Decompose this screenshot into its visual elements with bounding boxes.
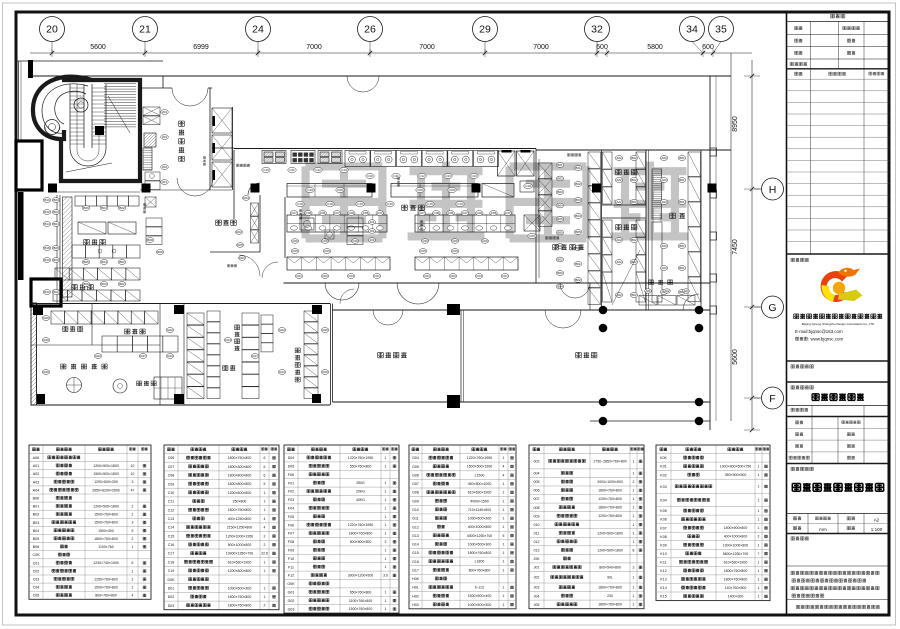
svg-text:B02: B02 xyxy=(33,513,39,517)
svg-text:B06: B06 xyxy=(33,545,39,549)
svg-text:2000×1000×500: 2000×1000×500 xyxy=(597,480,623,484)
svg-text:D04: D04 xyxy=(243,196,249,200)
svg-text:C02: C02 xyxy=(450,274,456,278)
svg-text:C02: C02 xyxy=(33,569,40,573)
svg-text:C06: C06 xyxy=(452,249,458,253)
svg-text:C01: C01 xyxy=(374,274,380,278)
svg-text:1: 1 xyxy=(633,540,635,544)
svg-text:C06: C06 xyxy=(306,211,312,215)
svg-text:1: 1 xyxy=(264,569,266,573)
svg-text:90L: 90L xyxy=(607,576,613,580)
svg-text:1: 1 xyxy=(385,557,387,561)
svg-text:G04: G04 xyxy=(412,456,419,460)
svg-text:1: 1 xyxy=(385,506,387,510)
svg-text:D02: D02 xyxy=(168,595,175,599)
svg-text:1: 1 xyxy=(633,497,635,501)
svg-text:5800: 5800 xyxy=(647,44,663,51)
svg-text:1: 1 xyxy=(264,491,266,495)
svg-text:1200×760×800: 1200×760×800 xyxy=(598,497,622,501)
svg-text:C14: C14 xyxy=(168,526,175,530)
svg-text:B01: B01 xyxy=(679,244,685,248)
svg-text:B02: B02 xyxy=(557,177,563,181)
svg-text:B02: B02 xyxy=(119,282,125,286)
svg-text:6: 6 xyxy=(264,465,266,469)
svg-text:F07: F07 xyxy=(288,532,294,536)
svg-text:K07: K07 xyxy=(660,526,666,530)
svg-text:B12: B12 xyxy=(44,290,50,294)
svg-text:4: 4 xyxy=(264,517,266,521)
svg-text:C18: C18 xyxy=(168,560,175,564)
svg-text:C03: C03 xyxy=(33,578,40,582)
svg-text:1800×760×800: 1800×760×800 xyxy=(228,604,252,608)
svg-text:C13: C13 xyxy=(341,168,347,172)
svg-text:5600: 5600 xyxy=(732,349,739,365)
svg-text:1: 1 xyxy=(385,565,387,569)
svg-text:610×630×1900: 610×630×1900 xyxy=(724,560,748,564)
svg-text:5600×1250×700: 5600×1250×700 xyxy=(723,552,749,556)
svg-text:1220×760×1950: 1220×760×1950 xyxy=(348,456,374,460)
svg-text:1800×760×800: 1800×760×800 xyxy=(228,595,252,599)
svg-text:1: 1 xyxy=(633,523,635,527)
svg-text:A02: A02 xyxy=(616,156,622,160)
svg-text:2: 2 xyxy=(132,577,134,581)
svg-text:6: 6 xyxy=(264,456,266,460)
svg-text:H0K: H0K xyxy=(412,577,420,581)
svg-text:450×500×1000: 450×500×1000 xyxy=(468,482,492,486)
svg-text:400×1000×800: 400×1000×800 xyxy=(724,535,748,539)
svg-text:10: 10 xyxy=(131,472,135,476)
svg-text:G09: G09 xyxy=(412,499,419,503)
svg-text:C17: C17 xyxy=(168,552,175,556)
svg-text:G07: G07 xyxy=(412,482,419,486)
svg-text:B01: B01 xyxy=(679,200,685,204)
svg-text:10: 10 xyxy=(131,464,135,468)
svg-text:4: 4 xyxy=(503,473,505,477)
svg-text:C07: C07 xyxy=(377,211,383,215)
svg-text:8: 8 xyxy=(633,548,635,552)
svg-text:B02: B02 xyxy=(631,156,637,160)
svg-text:1: 1 xyxy=(758,543,760,547)
svg-text:8950: 8950 xyxy=(732,116,739,132)
svg-text:B01: B01 xyxy=(679,156,685,160)
svg-text:A03: A03 xyxy=(683,289,689,293)
svg-text:G06: G06 xyxy=(43,370,49,374)
svg-text:C16: C16 xyxy=(168,543,175,547)
svg-text:1230×740×1900: 1230×740×1900 xyxy=(93,561,119,565)
svg-text:1800×760×800: 1800×760×800 xyxy=(598,603,622,607)
svg-text:007: 007 xyxy=(534,497,540,501)
svg-text:1: 1 xyxy=(503,517,505,521)
svg-text:1: 1 xyxy=(758,560,760,564)
svg-text:G08: G08 xyxy=(412,491,419,495)
svg-text:J02: J02 xyxy=(534,576,540,580)
svg-text:G04: G04 xyxy=(225,338,231,342)
svg-text:B02: B02 xyxy=(557,258,563,262)
svg-text:1: 1 xyxy=(633,472,635,476)
svg-text:G12: G12 xyxy=(412,525,419,529)
svg-text:1800×760×800: 1800×760×800 xyxy=(228,508,252,512)
svg-text:1: 1 xyxy=(758,595,760,599)
svg-text:C10: C10 xyxy=(168,491,175,495)
svg-text:B02: B02 xyxy=(575,182,581,186)
svg-text:C03: C03 xyxy=(348,274,354,278)
svg-text:C09: C09 xyxy=(417,188,423,192)
svg-text:1500×760×800: 1500×760×800 xyxy=(349,607,373,611)
svg-text:K05: K05 xyxy=(660,509,666,513)
svg-text:C15: C15 xyxy=(327,202,333,206)
svg-text:B14: B14 xyxy=(44,222,50,226)
svg-text:C15: C15 xyxy=(387,202,393,206)
svg-text:250×800: 250×800 xyxy=(233,500,247,504)
svg-text:1220×760×1950: 1220×760×1950 xyxy=(467,456,493,460)
svg-text:D05: D05 xyxy=(237,243,243,247)
svg-text:G05: G05 xyxy=(412,465,419,469)
svg-text:1800×760×800: 1800×760×800 xyxy=(228,456,252,460)
svg-text:G10: G10 xyxy=(412,508,419,512)
svg-text:1200×500×1800: 1200×500×1800 xyxy=(93,464,119,468)
svg-text:B03: B03 xyxy=(557,190,563,194)
svg-text:C15: C15 xyxy=(168,534,175,538)
svg-text:1220×760×1950: 1220×760×1950 xyxy=(348,523,374,527)
svg-text:26: 26 xyxy=(364,24,376,36)
svg-text:1800×760×800: 1800×760×800 xyxy=(598,506,622,510)
svg-text:2: 2 xyxy=(132,513,134,517)
svg-text:1: 1 xyxy=(758,473,760,477)
svg-text:1: 1 xyxy=(633,603,635,607)
svg-text:B02: B02 xyxy=(119,206,125,210)
svg-text:35: 35 xyxy=(715,24,727,36)
svg-text:C06: C06 xyxy=(324,249,330,253)
svg-text:C06: C06 xyxy=(482,239,488,243)
svg-text:C10: C10 xyxy=(307,188,313,192)
svg-text:J03: J03 xyxy=(534,586,540,590)
svg-text:C05: C05 xyxy=(292,249,298,253)
svg-text:013: 013 xyxy=(534,549,540,553)
svg-text:1250×760×800: 1250×760×800 xyxy=(94,577,118,581)
svg-text:008: 008 xyxy=(534,506,540,510)
svg-text:1: 1 xyxy=(758,569,760,573)
svg-text:B02: B02 xyxy=(631,200,637,204)
svg-text:1: 1 xyxy=(758,578,760,582)
svg-text:J01: J01 xyxy=(534,566,540,570)
svg-text:H02: H02 xyxy=(412,594,419,598)
svg-text:5600: 5600 xyxy=(90,44,106,51)
svg-text:4: 4 xyxy=(132,594,134,598)
svg-text:K01: K01 xyxy=(660,465,666,469)
svg-text:A02: A02 xyxy=(33,472,39,476)
svg-text:C01: C01 xyxy=(502,274,508,278)
svg-text:3000×1200×500: 3000×1200×500 xyxy=(348,574,374,578)
svg-text:C13: C13 xyxy=(445,174,451,178)
svg-text:B10: B10 xyxy=(44,258,50,262)
svg-text:C02: C02 xyxy=(322,274,328,278)
svg-text:1: 1 xyxy=(385,590,387,594)
svg-text:2: 2 xyxy=(132,505,134,509)
svg-text:J01: J01 xyxy=(370,220,375,224)
svg-text:B01: B01 xyxy=(33,505,39,509)
svg-text:G06: G06 xyxy=(412,474,419,478)
svg-text:C13: C13 xyxy=(168,517,175,521)
svg-text:1: 1 xyxy=(633,514,635,518)
svg-text:B04: B04 xyxy=(557,204,563,208)
svg-text:1: 1 xyxy=(264,508,266,512)
svg-text:550×760×800: 550×760×800 xyxy=(350,464,372,468)
svg-text:J04: J04 xyxy=(534,594,540,598)
svg-text:004: 004 xyxy=(534,472,540,476)
svg-text:1: 1 xyxy=(503,542,505,546)
svg-text:1: 1 xyxy=(633,506,635,510)
svg-text:G02: G02 xyxy=(279,370,285,374)
svg-text:600: 600 xyxy=(702,44,714,51)
svg-text:A03: A03 xyxy=(661,156,667,160)
svg-text:Beijing Qineng Shangchu Design: Beijing Qineng Shangchu Design Consultan… xyxy=(802,322,875,326)
svg-text:003: 003 xyxy=(534,460,540,464)
svg-text:1800×760×800: 1800×760×800 xyxy=(349,532,373,536)
svg-text:D01: D01 xyxy=(168,586,175,590)
svg-text:J0K: J0K xyxy=(533,557,540,561)
svg-text:D02: D02 xyxy=(236,230,242,234)
svg-text:24: 24 xyxy=(252,24,264,36)
svg-text:1800×760×800: 1800×760×800 xyxy=(94,537,118,541)
svg-text:2: 2 xyxy=(264,543,266,547)
svg-text:A03: A03 xyxy=(661,200,667,204)
svg-text:800×760×800: 800×760×800 xyxy=(469,568,491,572)
svg-text:6999: 6999 xyxy=(193,44,209,51)
svg-text:G07: G07 xyxy=(252,354,258,358)
svg-text:5: 5 xyxy=(503,534,505,538)
svg-text:A02: A02 xyxy=(616,178,622,182)
svg-text:C10: C10 xyxy=(367,174,373,178)
svg-text:2: 2 xyxy=(264,534,266,538)
svg-text:1200×500×1800: 1200×500×1800 xyxy=(597,531,623,535)
svg-text:B04: B04 xyxy=(101,282,107,286)
svg-text:2650×6200×2600: 2650×6200×2600 xyxy=(92,488,119,492)
svg-text:Φ900×1500: Φ900×1500 xyxy=(470,499,489,503)
svg-text:G02: G02 xyxy=(167,354,173,358)
svg-text:2: 2 xyxy=(633,480,635,484)
svg-text:1: 1 xyxy=(503,491,505,495)
svg-text:B06: B06 xyxy=(83,282,89,286)
svg-text:B12: B12 xyxy=(44,210,50,214)
svg-text:1500×500×400: 1500×500×400 xyxy=(468,594,492,598)
svg-text:J02: J02 xyxy=(370,229,375,233)
svg-text:009: 009 xyxy=(534,514,540,518)
svg-text:F01: F01 xyxy=(288,481,294,485)
svg-text:1: 1 xyxy=(503,525,505,529)
svg-text:1: 1 xyxy=(503,603,505,607)
svg-text:1: 1 xyxy=(503,499,505,503)
svg-text:3: 3 xyxy=(132,521,134,525)
svg-text:C12: C12 xyxy=(315,168,321,172)
svg-text:006: 006 xyxy=(534,489,540,493)
svg-text:G: G xyxy=(768,302,776,314)
svg-text:1: 1 xyxy=(132,545,134,549)
svg-text:6: 6 xyxy=(132,561,134,565)
svg-text:C11: C11 xyxy=(168,500,174,504)
svg-text:C04: C04 xyxy=(33,586,40,590)
svg-text:H01: H01 xyxy=(412,586,419,590)
svg-text:F02: F02 xyxy=(288,490,294,494)
svg-text:B01: B01 xyxy=(679,266,685,270)
svg-text:C05: C05 xyxy=(320,211,326,215)
svg-text:B05: B05 xyxy=(575,230,581,234)
svg-text:800×760×800: 800×760×800 xyxy=(95,594,117,598)
svg-text:B02: B02 xyxy=(631,178,637,182)
svg-text:4: 4 xyxy=(264,526,266,530)
svg-text:1: 1 xyxy=(758,526,760,530)
svg-text:G07: G07 xyxy=(140,354,146,358)
svg-text:C05: C05 xyxy=(420,249,426,253)
svg-text:D03: D03 xyxy=(168,604,175,608)
svg-text:B02: B02 xyxy=(575,278,581,282)
svg-text:34: 34 xyxy=(686,24,698,36)
svg-text:1: 1 xyxy=(633,594,635,598)
svg-text:K09: K09 xyxy=(660,543,666,547)
svg-text:7450: 7450 xyxy=(732,239,739,255)
svg-text:011: 011 xyxy=(534,531,540,535)
svg-text:K15: K15 xyxy=(660,595,666,599)
svg-text:B04: B04 xyxy=(53,222,59,226)
svg-text:1800×300×800: 1800×300×800 xyxy=(228,465,252,469)
svg-text:A01: A01 xyxy=(645,289,651,293)
svg-text:D0K: D0K xyxy=(168,578,176,582)
svg-text:1: 1 xyxy=(385,490,387,494)
svg-text:1: 1 xyxy=(385,515,387,519)
svg-text:1: 1 xyxy=(132,569,134,573)
svg-text:H03: H03 xyxy=(412,603,419,607)
svg-text:1: 1 xyxy=(385,607,387,611)
svg-text:32: 32 xyxy=(591,24,603,36)
svg-text:F08: F08 xyxy=(288,540,294,544)
svg-text:1: 1 xyxy=(385,464,387,468)
svg-text:1: 1 xyxy=(758,498,760,502)
svg-text:B02: B02 xyxy=(119,260,125,264)
svg-text:A02: A02 xyxy=(664,289,670,293)
svg-text:B04: B04 xyxy=(33,529,39,533)
svg-text:500×500×500: 500×500×500 xyxy=(350,540,372,544)
svg-text:1: 1 xyxy=(758,586,760,590)
svg-text:F11: F11 xyxy=(288,565,294,569)
svg-text:B00: B00 xyxy=(147,238,153,242)
svg-text:600: 600 xyxy=(596,44,608,51)
svg-text:G0K: G0K xyxy=(287,582,295,586)
svg-text:B03: B03 xyxy=(33,521,39,525)
svg-text:012: 012 xyxy=(534,540,540,544)
svg-text:1200×500×300: 1200×500×300 xyxy=(94,480,118,484)
svg-text:C15: C15 xyxy=(357,202,363,206)
svg-text:1200×500×1800: 1200×500×1800 xyxy=(597,548,623,552)
svg-text:1500×900×800: 1500×900×800 xyxy=(724,526,748,530)
svg-text:1: 1 xyxy=(503,586,505,590)
svg-text:B04: B04 xyxy=(101,206,107,210)
svg-text:1: 1 xyxy=(264,500,266,504)
svg-text:1000×1000×800: 1000×1000×800 xyxy=(723,543,749,547)
svg-text:20: 20 xyxy=(46,24,58,36)
svg-text:C15: C15 xyxy=(297,202,303,206)
svg-text:A03: A03 xyxy=(661,266,667,270)
svg-text:F0K: F0K xyxy=(288,473,295,477)
svg-text:1: 1 xyxy=(758,518,760,522)
svg-text:A02: A02 xyxy=(616,238,622,242)
svg-text:1750~2850×760×800: 1750~2850×760×800 xyxy=(593,460,626,464)
svg-text:B0K: B0K xyxy=(33,497,40,501)
svg-text:G05: G05 xyxy=(322,328,328,332)
svg-text:1000×500×300: 1000×500×300 xyxy=(468,542,492,546)
svg-text:B04: B04 xyxy=(101,260,107,264)
svg-text:1800×760×800: 1800×760×800 xyxy=(468,551,492,555)
svg-text:K08: K08 xyxy=(660,535,666,539)
svg-text:350×900×500: 350×900×500 xyxy=(725,473,747,477)
svg-text:1100×760×800: 1100×760×800 xyxy=(349,599,372,603)
svg-text:B08: B08 xyxy=(53,246,59,250)
svg-text:1: 1 xyxy=(385,498,387,502)
svg-text:D04: D04 xyxy=(288,456,295,460)
svg-text:C08: C08 xyxy=(168,474,175,478)
svg-text:C15: C15 xyxy=(457,202,463,206)
svg-text:1800×800×800: 1800×800×800 xyxy=(228,474,252,478)
svg-text:A02: A02 xyxy=(616,200,622,204)
svg-text:1: 1 xyxy=(264,560,266,564)
svg-text:F05: F05 xyxy=(288,515,294,519)
svg-text:F: F xyxy=(769,393,775,405)
svg-text:B06: B06 xyxy=(557,231,563,235)
svg-text:L1800: L1800 xyxy=(475,560,485,564)
svg-text:C06: C06 xyxy=(292,239,298,243)
svg-text:230: 230 xyxy=(607,594,613,598)
svg-text:1000×500×300: 1000×500×300 xyxy=(468,603,492,607)
svg-text:1800×760×800: 1800×760×800 xyxy=(598,489,622,493)
svg-text:1: 1 xyxy=(633,576,635,580)
svg-text:mm: mm xyxy=(819,527,827,532)
svg-text:C05: C05 xyxy=(448,211,454,215)
svg-text:1800×800×800: 1800×800×800 xyxy=(228,482,252,486)
svg-text:1500×760×800: 1500×760×800 xyxy=(94,521,118,525)
svg-text:C11: C11 xyxy=(289,168,295,172)
svg-text:G02: G02 xyxy=(167,328,173,332)
svg-text:203: 203 xyxy=(162,135,167,139)
svg-text:500×1000×800: 500×1000×800 xyxy=(228,543,252,547)
svg-text:A0K: A0K xyxy=(33,456,40,460)
svg-text:E-mail:bjqnsc@163.com: E-mail:bjqnsc@163.com xyxy=(795,329,843,334)
svg-text:G03: G03 xyxy=(288,607,295,611)
svg-text:1500×300: 1500×300 xyxy=(98,529,114,533)
svg-text:1800×760×800: 1800×760×800 xyxy=(724,569,748,573)
svg-text:22.8: 22.8 xyxy=(261,552,268,556)
svg-text:K02: K02 xyxy=(660,473,666,477)
svg-text:G01: G01 xyxy=(288,591,295,595)
svg-text:C03: C03 xyxy=(476,274,482,278)
svg-text:C06: C06 xyxy=(452,239,458,243)
svg-text:C07: C07 xyxy=(462,211,468,215)
svg-text:B01: B01 xyxy=(575,166,581,170)
svg-text:5: 5 xyxy=(132,529,134,533)
svg-text:J05: J05 xyxy=(534,603,540,607)
svg-text:C06: C06 xyxy=(434,211,440,215)
svg-text:B00: B00 xyxy=(157,250,163,254)
svg-text:1: 1 xyxy=(385,548,387,552)
svg-text:1200×760×800: 1200×760×800 xyxy=(598,514,622,518)
svg-text:C06: C06 xyxy=(348,211,354,215)
svg-text:C10: C10 xyxy=(471,174,477,178)
svg-text:1200×1000×1950: 1200×1000×1950 xyxy=(226,534,253,538)
svg-text:2: 2 xyxy=(264,604,266,608)
svg-text:G17: G17 xyxy=(412,568,419,572)
svg-text:A04: A04 xyxy=(33,488,39,492)
svg-text:2150×1250×800: 2150×1250×800 xyxy=(227,526,253,530)
svg-text:610×630×1900: 610×630×1900 xyxy=(228,560,252,564)
svg-text:G02: G02 xyxy=(95,354,101,358)
svg-text:2: 2 xyxy=(132,586,134,590)
